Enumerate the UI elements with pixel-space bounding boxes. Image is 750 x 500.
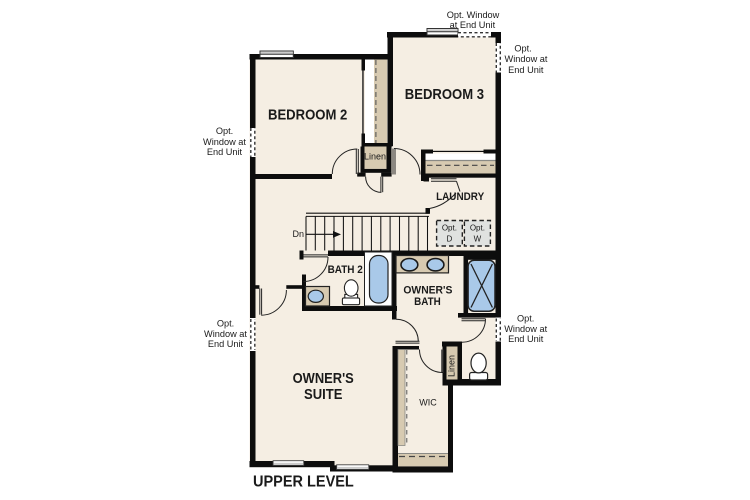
svg-text:SUITE: SUITE [304,386,342,403]
svg-text:End Unit: End Unit [208,339,244,349]
svg-text:BEDROOM 2: BEDROOM 2 [268,108,347,124]
svg-text:Opt.: Opt. [217,319,234,329]
svg-text:End Unit: End Unit [508,65,544,75]
svg-text:WIC: WIC [419,398,437,408]
svg-text:Window at: Window at [505,54,548,64]
svg-text:LAUNDRY: LAUNDRY [436,191,485,203]
svg-text:Opt.: Opt. [442,223,457,232]
svg-text:at End Unit: at End Unit [450,20,496,30]
svg-text:Opt.: Opt. [514,44,531,54]
svg-text:BATH 2: BATH 2 [328,264,363,276]
svg-text:BEDROOM 3: BEDROOM 3 [405,87,484,103]
svg-text:Dn: Dn [293,229,305,239]
svg-text:OWNER'S: OWNER'S [403,284,452,296]
svg-text:End Unit: End Unit [207,147,243,157]
svg-text:Window at: Window at [504,324,547,334]
svg-text:Linen: Linen [364,152,386,162]
svg-text:End Unit: End Unit [508,334,544,344]
svg-text:Linen: Linen [447,355,457,377]
svg-text:Opt.: Opt. [517,314,534,324]
svg-text:Window at: Window at [204,329,247,339]
svg-text:Window at: Window at [203,137,246,147]
svg-text:Opt. Window: Opt. Window [447,10,500,20]
svg-text:BATH: BATH [414,296,441,308]
svg-text:OWNER'S: OWNER'S [293,370,354,387]
svg-text:D: D [447,234,453,243]
svg-text:W: W [474,234,482,243]
svg-text:Opt.: Opt. [470,223,485,232]
svg-text:Opt.: Opt. [216,126,233,136]
svg-text:UPPER LEVEL: UPPER LEVEL [253,473,354,490]
